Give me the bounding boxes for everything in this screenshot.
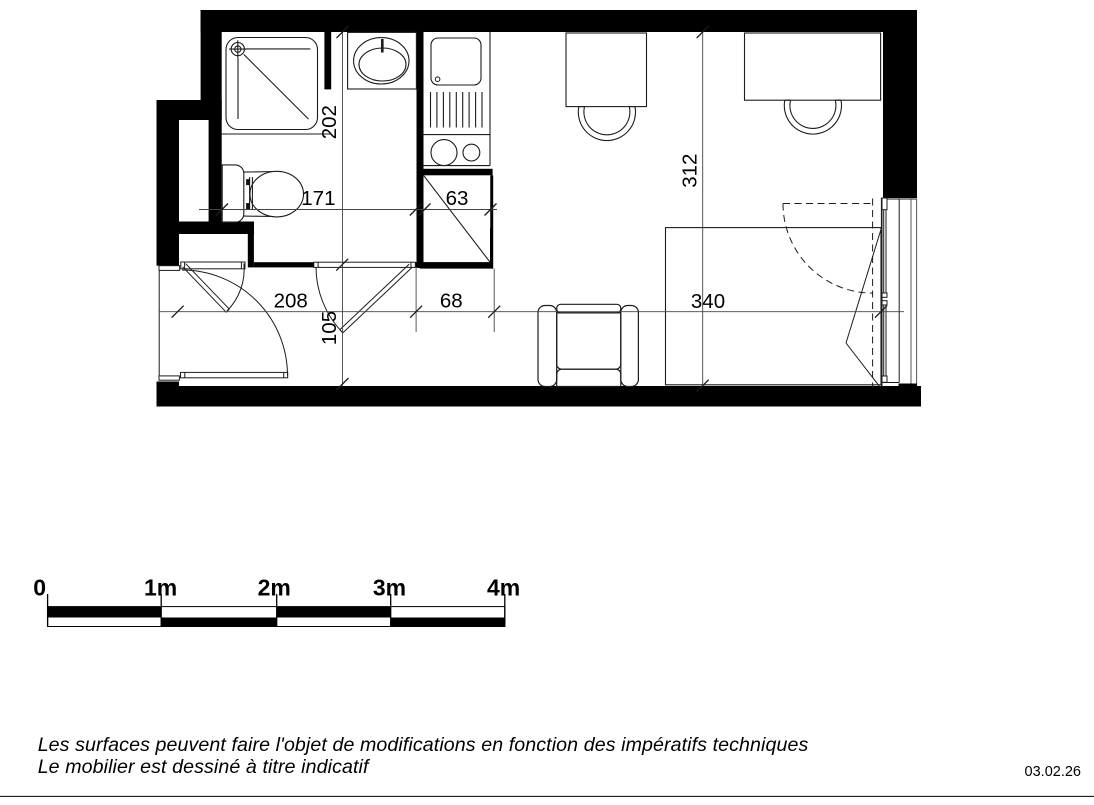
svg-text:3m: 3m xyxy=(373,575,406,601)
svg-text:2m: 2m xyxy=(258,575,291,601)
svg-text:208: 208 xyxy=(274,290,308,313)
svg-text:68: 68 xyxy=(440,290,463,313)
svg-text:63: 63 xyxy=(446,187,469,210)
svg-text:Le mobilier est dessiné à titr: Le mobilier est dessiné à titre indicati… xyxy=(38,756,371,778)
svg-text:105: 105 xyxy=(318,311,341,345)
svg-text:4m: 4m xyxy=(487,575,520,601)
svg-text:312: 312 xyxy=(679,154,702,188)
svg-text:03.02.26: 03.02.26 xyxy=(1025,764,1081,780)
svg-text:1m: 1m xyxy=(144,575,177,601)
svg-text:340: 340 xyxy=(691,290,725,313)
svg-text:202: 202 xyxy=(318,105,341,139)
svg-text:171: 171 xyxy=(301,187,335,210)
svg-text:0: 0 xyxy=(33,575,46,601)
svg-text:Les surfaces peuvent faire l'o: Les surfaces peuvent faire l'objet de mo… xyxy=(38,734,809,756)
